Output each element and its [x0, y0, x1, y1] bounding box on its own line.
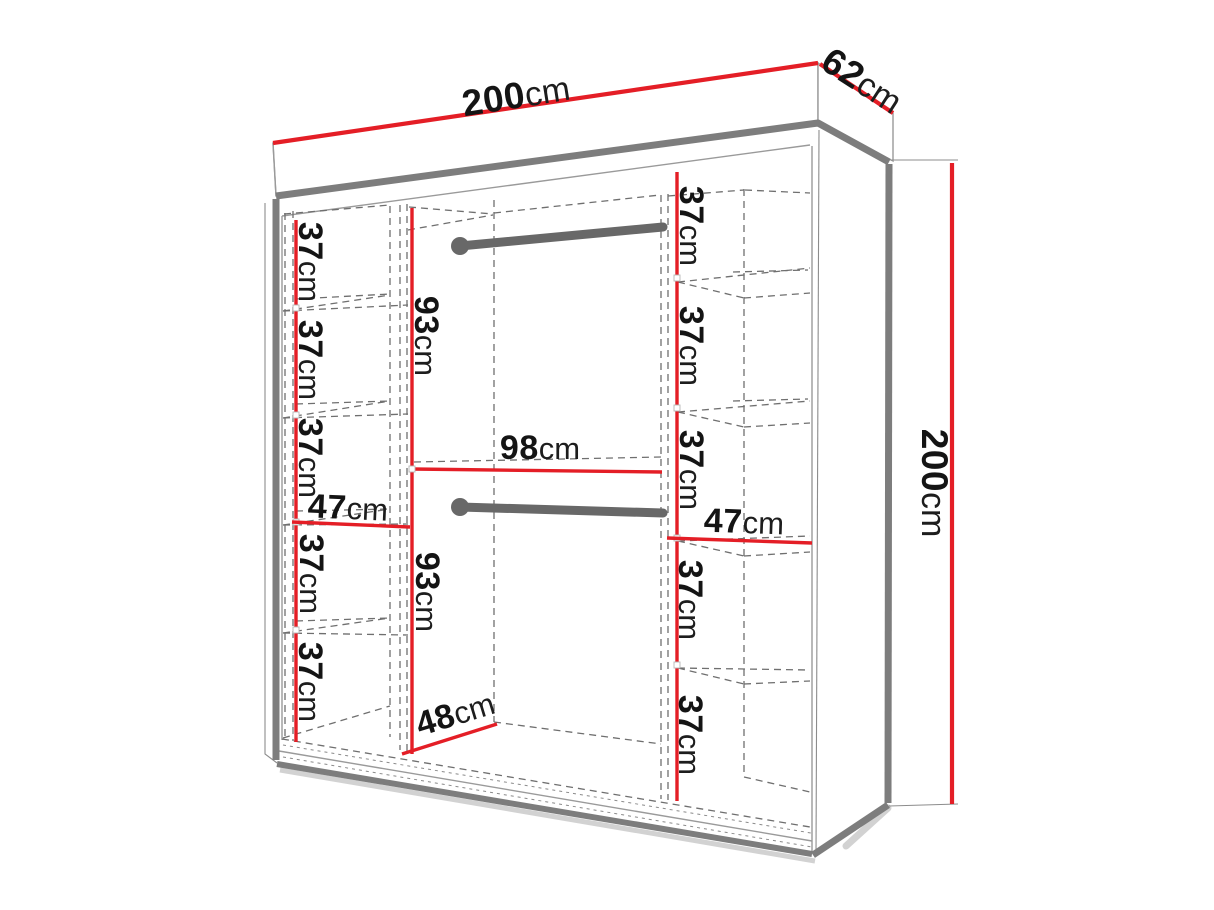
right-shelf-label-3: 37cm [672, 430, 710, 510]
lower-hanging-label: 93cm [408, 552, 446, 632]
left-shelf-label-4: 37cm [292, 534, 330, 614]
left-shelf-label-5: 37cm [291, 642, 329, 722]
right-width-label: 47cm [703, 502, 784, 543]
right-shelf-label-5: 37cm [671, 695, 709, 775]
diagram-canvas: 200cm 62cm 200cm 37cm 37cm 37cm 37cm 37c… [0, 0, 1214, 910]
right-shelf-label-2: 37cm [672, 306, 710, 386]
height-dimension-label: 200cm [914, 429, 955, 538]
wardrobe-dimension-diagram: 200cm 62cm 200cm 37cm 37cm 37cm 37cm 37c… [0, 0, 1214, 910]
height-extension-bottom [889, 804, 958, 806]
upper-hanging-label: 93cm [407, 296, 445, 376]
right-shelf-label-4: 37cm [671, 560, 709, 640]
right-shelf-label-1: 37cm [672, 186, 710, 266]
left-shelf-label-1: 37cm [291, 222, 329, 302]
center-width-label: 98cm [500, 429, 580, 467]
left-width-label: 47cm [307, 487, 389, 528]
left-shelf-label-3: 37cm [291, 418, 329, 498]
left-shelf-label-2: 37cm [291, 320, 329, 400]
